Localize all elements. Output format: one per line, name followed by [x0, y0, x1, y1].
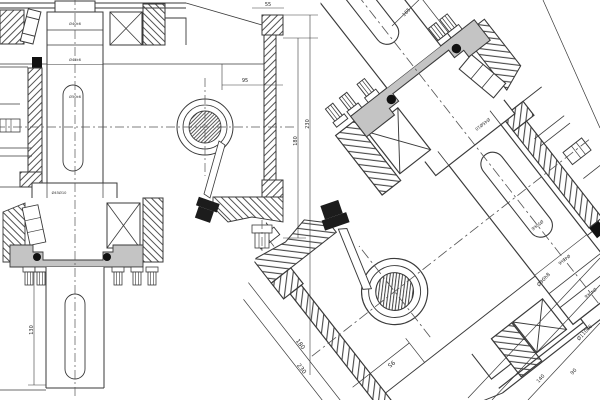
- cad-drawing: 180 230 95 55 130 Ø40k6 Ø45k6 Ø50k6 Ø45Ø…: [0, 0, 600, 400]
- left-view: [0, 0, 318, 396]
- right-view: [94, 0, 600, 400]
- dim-140: 140: [536, 373, 547, 384]
- dim-90: 90: [570, 368, 579, 377]
- cad-blueprint-canvas: 180 230 95 55 130 Ø40k6 Ø45k6 Ø50k6 Ø45Ø…: [0, 0, 600, 400]
